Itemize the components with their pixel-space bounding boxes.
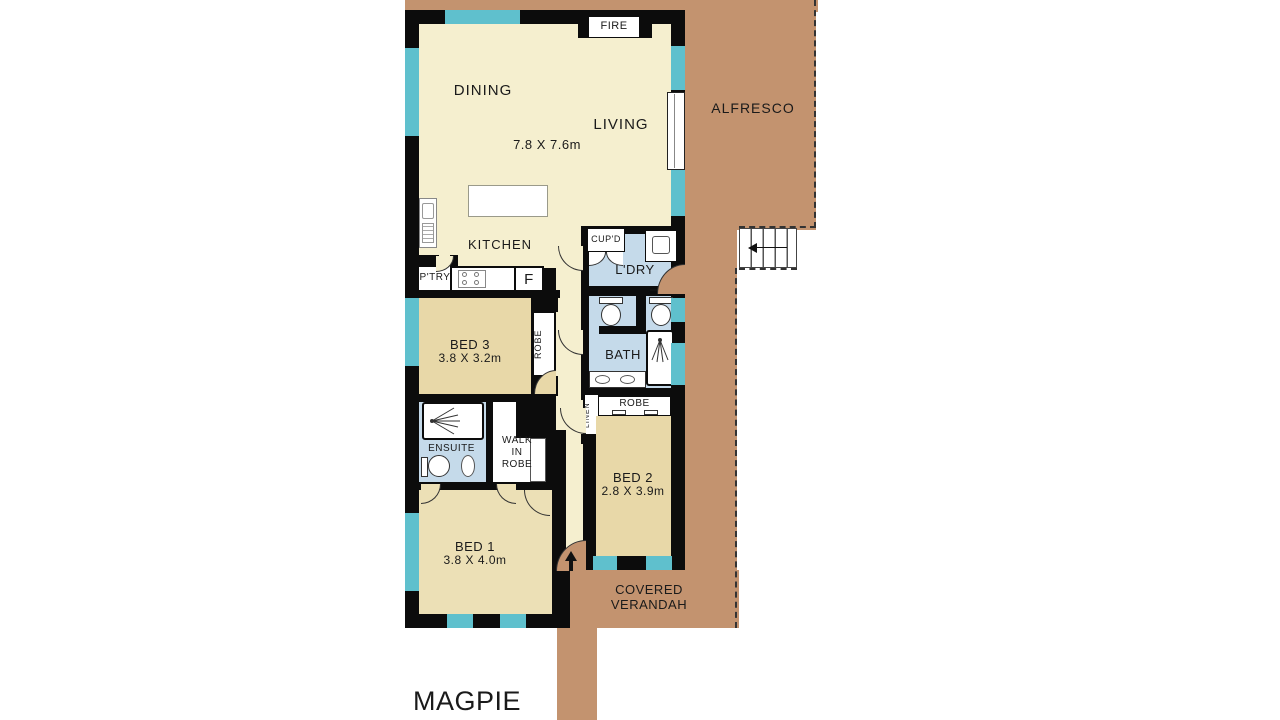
- bed1-dims: 3.8 X 4.0m: [425, 554, 525, 568]
- toilet-cistern: [649, 297, 673, 304]
- kitchen-label: KITCHEN: [450, 238, 550, 253]
- covered-verandah-label: COVERED VERANDAH: [589, 583, 709, 613]
- island-bench: [468, 185, 548, 217]
- robe2-door-notch: [644, 410, 658, 415]
- ensuite-label: ENSUITE: [414, 443, 489, 455]
- kitchen-sink-drainer: [422, 223, 434, 243]
- entry-arrow-stem: [569, 560, 573, 571]
- toilet-cistern: [421, 457, 428, 477]
- plan-title: MAGPIE 3: [405, 686, 535, 720]
- alfresco-sliding-door: [667, 92, 685, 170]
- window: [671, 343, 685, 385]
- bath-label: BATH: [592, 348, 654, 363]
- laundry-label: L'DRY: [600, 263, 670, 278]
- alfresco-label: ALFRESCO: [703, 100, 803, 116]
- robe3-wall-top: [531, 290, 558, 312]
- ensuite-basin: [461, 455, 475, 477]
- window: [646, 556, 672, 570]
- verandah-right-strip: [684, 230, 737, 628]
- living-label: LIVING: [571, 116, 671, 133]
- bed1-right-wall: [552, 430, 566, 614]
- robe2-door-notch: [612, 410, 626, 415]
- ensuite-shower: [422, 402, 484, 440]
- toilet-bowl: [601, 304, 621, 326]
- robe3-label: ROBE: [533, 316, 555, 372]
- bed2-dims: 2.8 X 3.9m: [583, 485, 683, 499]
- stove-burner: [462, 272, 467, 277]
- toilet-bowl: [428, 455, 450, 477]
- steps-arrow-head: [748, 243, 757, 253]
- vanity-basin: [620, 375, 635, 384]
- window: [447, 614, 473, 628]
- verandah-hatch-right: [735, 268, 737, 628]
- window: [445, 10, 520, 24]
- window: [593, 556, 617, 570]
- window: [405, 298, 419, 366]
- window: [671, 170, 685, 216]
- dining-label: DINING: [433, 82, 533, 99]
- kitchen-sink-bowl-top: [422, 203, 434, 219]
- window: [500, 614, 526, 628]
- stove-burner: [474, 280, 479, 285]
- wc-bottom-wall: [599, 326, 646, 334]
- living-dims: 7.8 X 7.6m: [497, 138, 597, 153]
- bed3-dims: 3.8 X 3.2m: [420, 352, 520, 366]
- steps-arrow-line: [755, 247, 787, 248]
- toilet-bowl: [651, 304, 671, 326]
- steps-hatch-bottom: [739, 268, 797, 270]
- robe2-label: ROBE: [598, 398, 671, 410]
- fire-label: FIRE: [588, 20, 640, 33]
- fridge-label: F: [514, 271, 544, 288]
- wir-wall-block: [516, 394, 548, 438]
- entry-path: [557, 628, 597, 720]
- window: [671, 298, 685, 322]
- vanity-basin: [595, 375, 610, 384]
- window: [405, 513, 419, 591]
- window: [405, 48, 419, 136]
- stove-burner: [462, 280, 467, 285]
- floorplan-page: P'TRY F DINING LIVING 7.8 X 7.6m KITCHEN…: [0, 0, 1280, 720]
- wir-label: WALK IN ROBE: [489, 435, 545, 471]
- window: [671, 46, 685, 90]
- toilet-cistern: [599, 297, 623, 304]
- alfresco-sliding-door-track: [674, 94, 675, 168]
- stove-burner: [474, 272, 479, 277]
- laundry-trough-bowl: [652, 236, 670, 254]
- cupboard-label: CUP'D: [587, 234, 625, 244]
- alfresco-hatch-right: [814, 0, 816, 228]
